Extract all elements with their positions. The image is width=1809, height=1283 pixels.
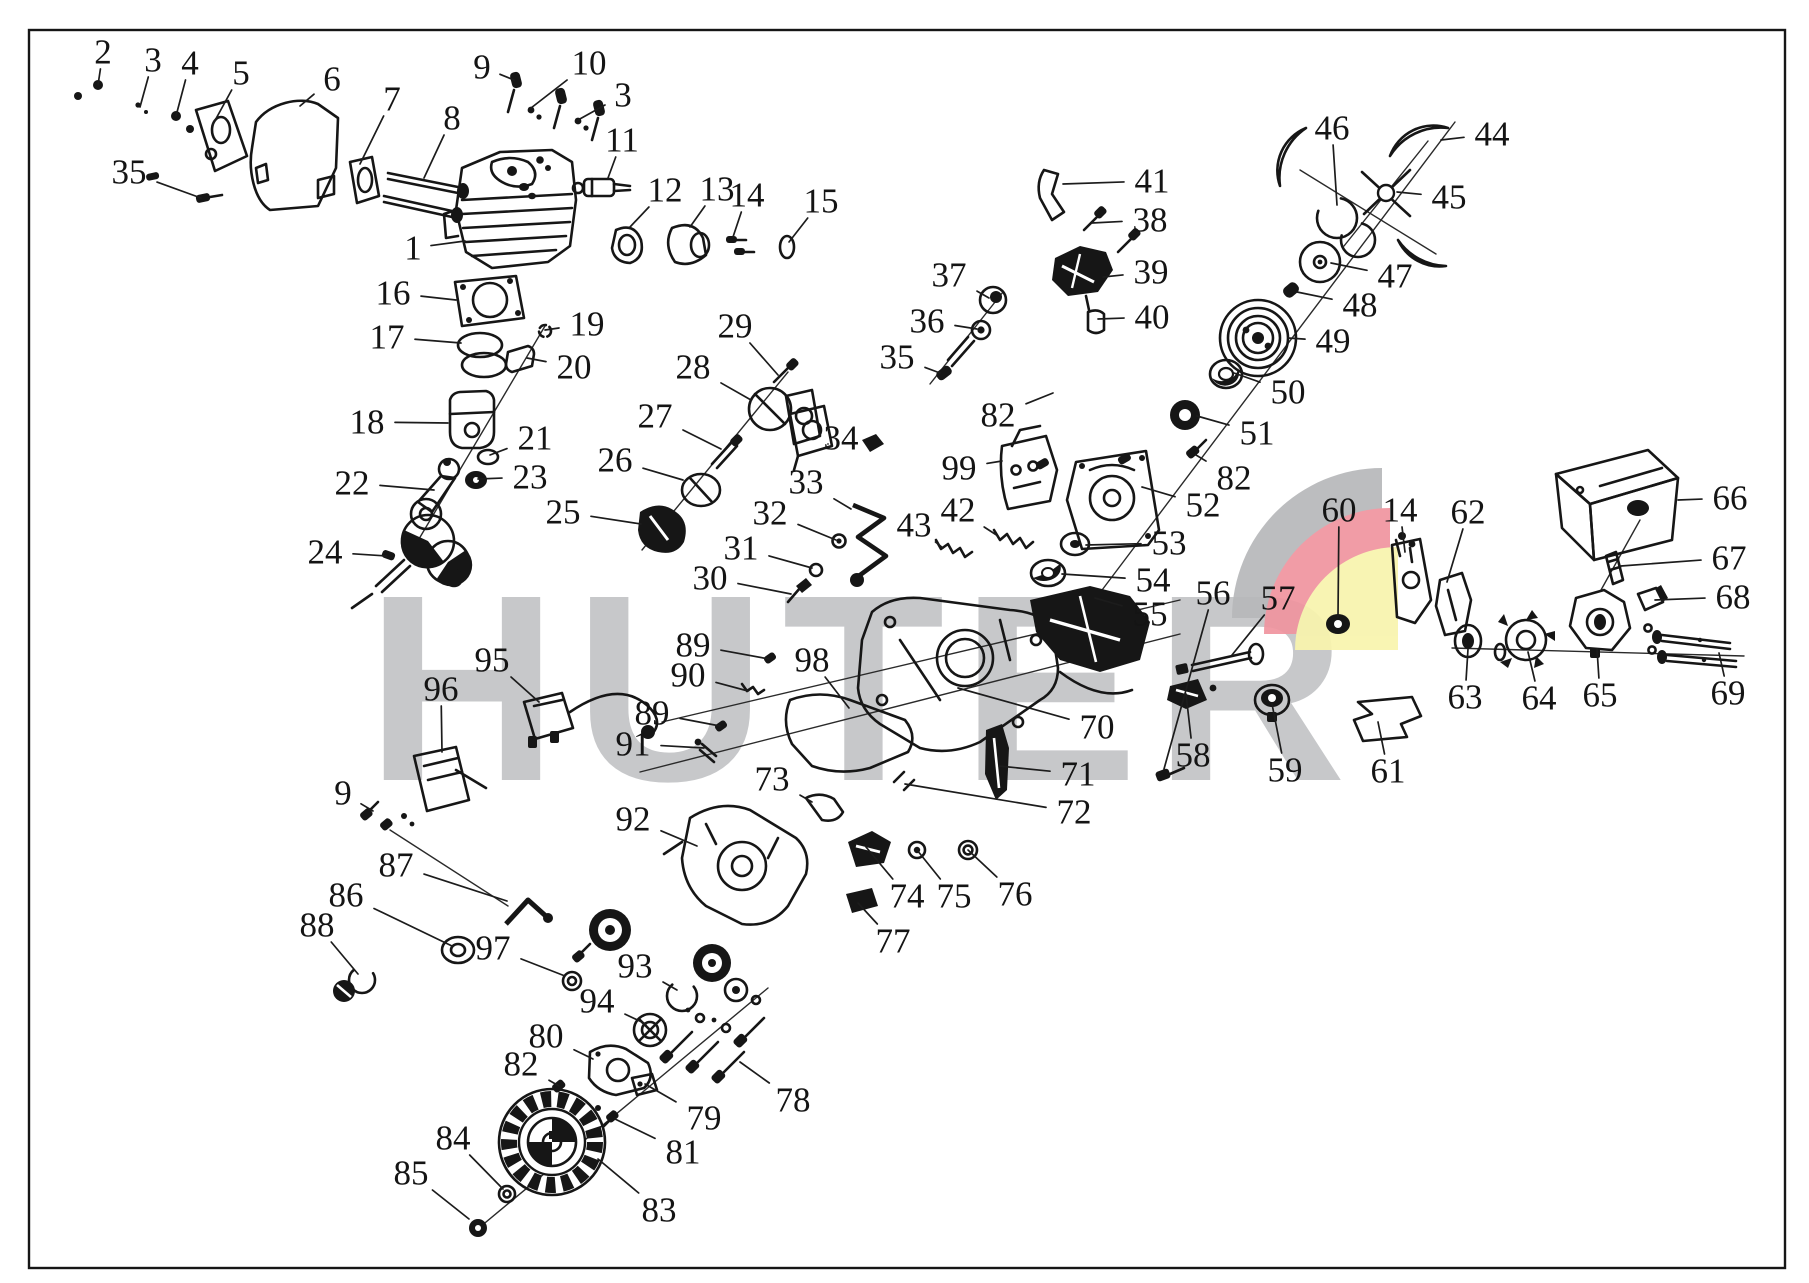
part-label-71: 71 xyxy=(1061,755,1096,794)
muffler-plate xyxy=(196,101,247,171)
leader-line-8 xyxy=(424,135,444,178)
leader-line-15 xyxy=(789,218,808,242)
part-label-61: 61 xyxy=(1371,752,1406,791)
leader-line-44 xyxy=(1441,137,1464,140)
leader-line-3 xyxy=(140,77,148,107)
leader-line-29 xyxy=(750,343,778,375)
part-label-94: 94 xyxy=(580,982,615,1021)
part-label-24: 24 xyxy=(308,533,343,572)
leader-line-76 xyxy=(968,850,997,877)
leader-line-47 xyxy=(1331,263,1367,270)
flywheel xyxy=(469,1089,605,1237)
part-label-60: 60 xyxy=(1322,491,1357,530)
part-label-3: 3 xyxy=(144,41,162,80)
leader-line-83 xyxy=(598,1159,639,1193)
leader-line-97 xyxy=(521,959,565,976)
part-label-66: 66 xyxy=(1713,479,1748,518)
part-label-8: 8 xyxy=(443,99,461,138)
part-label-75: 75 xyxy=(937,877,972,916)
small-fasteners-topleft xyxy=(74,80,222,203)
leader-line-75 xyxy=(917,850,940,879)
part-label-22: 22 xyxy=(335,464,370,503)
pawl-washers xyxy=(333,900,553,1002)
part-label-87: 87 xyxy=(379,846,414,885)
part-label-4: 4 xyxy=(181,44,199,83)
starter-parts xyxy=(563,909,747,1046)
part-label-82: 82 xyxy=(981,396,1016,435)
leader-line-81 xyxy=(615,1119,655,1138)
exhaust-gasket xyxy=(350,157,379,203)
part-label-37: 37 xyxy=(932,256,967,295)
leader-line-38 xyxy=(1092,221,1122,223)
part-label-84: 84 xyxy=(436,1119,471,1158)
leader-line-23 xyxy=(478,478,502,479)
part-label-14: 14 xyxy=(1383,491,1418,530)
bar-plate xyxy=(1001,426,1057,509)
part-label-55: 55 xyxy=(1133,595,1168,634)
leader-line-49 xyxy=(1288,338,1305,339)
part-label-46: 46 xyxy=(1315,109,1350,148)
part-label-43: 43 xyxy=(897,506,932,545)
clutch-bearing-washer xyxy=(1170,360,1242,460)
part-label-83: 83 xyxy=(642,1191,677,1230)
part-label-77: 77 xyxy=(876,922,911,961)
part-label-10: 10 xyxy=(572,44,607,83)
leader-line-33 xyxy=(834,499,851,509)
oil-pump-group xyxy=(1455,552,1736,668)
leader-line-88 xyxy=(331,942,358,974)
part-label-49: 49 xyxy=(1316,322,1351,361)
part-label-65: 65 xyxy=(1583,676,1618,715)
leader-line-35 xyxy=(157,182,201,198)
part-label-91: 91 xyxy=(616,725,651,764)
part-label-35: 35 xyxy=(880,338,915,377)
leader-line-86 xyxy=(374,908,452,946)
part-label-50: 50 xyxy=(1271,373,1306,412)
part-label-21: 21 xyxy=(518,419,553,458)
part-label-42: 42 xyxy=(941,491,976,530)
part-label-9: 9 xyxy=(473,48,491,87)
part-label-81: 81 xyxy=(666,1133,701,1172)
part-label-88: 88 xyxy=(300,906,335,945)
part-label-92: 92 xyxy=(616,800,651,839)
leader-line-18 xyxy=(395,422,448,423)
part-label-59: 59 xyxy=(1268,751,1303,790)
part-label-93: 93 xyxy=(618,947,653,986)
leader-line-64 xyxy=(1528,652,1535,681)
part-label-96: 96 xyxy=(424,670,459,709)
leader-line-25 xyxy=(591,516,641,524)
part-label-44: 44 xyxy=(1475,115,1510,154)
leader-line-60 xyxy=(1338,527,1339,617)
piston-rings xyxy=(458,333,506,377)
part-label-73: 73 xyxy=(755,760,790,799)
part-label-6: 6 xyxy=(323,60,341,99)
leader-line-12 xyxy=(630,207,649,227)
part-label-17: 17 xyxy=(370,318,405,357)
part-label-58: 58 xyxy=(1176,736,1211,775)
part-label-51: 51 xyxy=(1240,414,1275,453)
part-label-35: 35 xyxy=(112,153,147,192)
leader-line-63 xyxy=(1466,649,1468,680)
part-label-36: 36 xyxy=(910,302,945,341)
part-label-63: 63 xyxy=(1448,678,1483,717)
part-label-72: 72 xyxy=(1057,793,1092,832)
leader-line-41 xyxy=(1063,182,1124,184)
leader-line-17 xyxy=(415,339,461,343)
part-label-97: 97 xyxy=(476,929,511,968)
part-label-76: 76 xyxy=(998,875,1033,914)
part-label-78: 78 xyxy=(776,1081,811,1120)
part-label-52: 52 xyxy=(1186,486,1221,525)
part-label-38: 38 xyxy=(1133,201,1168,240)
part-label-14: 14 xyxy=(730,176,765,215)
leader-line-19 xyxy=(545,328,559,330)
part-label-11: 11 xyxy=(605,121,639,160)
leader-line-67 xyxy=(1621,560,1701,566)
part-label-28: 28 xyxy=(676,348,711,387)
part-label-64: 64 xyxy=(1522,679,1557,718)
leader-line-66 xyxy=(1678,499,1702,500)
throttle-assembly xyxy=(1039,170,1142,333)
diagram-page: HUTER xyxy=(0,0,1809,1283)
part-label-32: 32 xyxy=(753,494,788,533)
part-label-25: 25 xyxy=(546,493,581,532)
part-label-41: 41 xyxy=(1135,162,1170,201)
leader-line-11 xyxy=(608,157,616,178)
part-label-45: 45 xyxy=(1432,178,1467,217)
part-label-90: 90 xyxy=(671,656,706,695)
leader-line-82 xyxy=(1026,393,1053,404)
part-label-26: 26 xyxy=(598,441,633,480)
part-label-95: 95 xyxy=(475,641,510,680)
part-label-69: 69 xyxy=(1711,674,1746,713)
part-label-82: 82 xyxy=(504,1045,539,1084)
part-label-23: 23 xyxy=(513,458,548,497)
part-label-53: 53 xyxy=(1152,524,1187,563)
part-label-7: 7 xyxy=(383,80,401,119)
part-label-33: 33 xyxy=(789,463,824,502)
part-label-12: 12 xyxy=(648,171,683,210)
part-label-56: 56 xyxy=(1196,574,1231,613)
part-label-20: 20 xyxy=(557,348,592,387)
leader-line-46 xyxy=(1333,145,1337,205)
part-label-67: 67 xyxy=(1712,539,1747,578)
part-label-19: 19 xyxy=(570,305,605,344)
part-label-31: 31 xyxy=(724,529,759,568)
leader-line-85 xyxy=(432,1190,469,1219)
part-label-16: 16 xyxy=(376,274,411,313)
part-label-68: 68 xyxy=(1716,578,1751,617)
part-label-3: 3 xyxy=(614,76,632,115)
leader-line-84 xyxy=(470,1155,503,1189)
leader-line-1 xyxy=(431,241,465,246)
leader-line-28 xyxy=(721,383,751,400)
part-label-40: 40 xyxy=(1135,298,1170,337)
leader-line-52 xyxy=(1142,487,1175,497)
leader-line-32 xyxy=(798,524,836,540)
leader-line-16 xyxy=(421,296,456,300)
leader-line-51 xyxy=(1197,416,1229,425)
part-label-29: 29 xyxy=(718,307,753,346)
part-label-85: 85 xyxy=(394,1154,429,1193)
leader-line-13 xyxy=(690,206,705,227)
leader-line-40 xyxy=(1098,318,1124,319)
part-label-34: 34 xyxy=(824,419,859,458)
leader-line-35 xyxy=(925,367,940,373)
part-label-99: 99 xyxy=(942,449,977,488)
leader-line-4 xyxy=(176,80,186,116)
leader-line-96 xyxy=(441,706,442,752)
muffler-body xyxy=(251,101,338,210)
part-label-39: 39 xyxy=(1134,253,1169,292)
part-label-15: 15 xyxy=(804,182,839,221)
base-gasket xyxy=(455,276,524,326)
part-label-27: 27 xyxy=(638,397,673,436)
part-label-57: 57 xyxy=(1261,579,1296,618)
chain-tensioner xyxy=(935,287,1006,382)
leader-line-26 xyxy=(643,468,683,480)
part-label-30: 30 xyxy=(693,559,728,598)
cylinder xyxy=(444,150,576,268)
leader-line-78 xyxy=(740,1062,769,1083)
part-label-47: 47 xyxy=(1378,257,1413,296)
part-label-48: 48 xyxy=(1343,286,1378,325)
part-label-18: 18 xyxy=(350,403,385,442)
intake-boot-parts xyxy=(638,357,820,553)
part-label-82: 82 xyxy=(1217,459,1252,498)
leader-line-20 xyxy=(527,358,546,362)
part-label-98: 98 xyxy=(795,641,830,680)
part-label-70: 70 xyxy=(1080,708,1115,747)
part-label-74: 74 xyxy=(890,877,925,916)
intake-manifold-parts xyxy=(612,225,794,264)
leader-line-14 xyxy=(733,212,741,237)
part-label-5: 5 xyxy=(232,54,250,93)
part-label-62: 62 xyxy=(1451,493,1486,532)
leader-line-82 xyxy=(1196,455,1206,461)
spark-plug xyxy=(573,179,630,196)
part-label-2: 2 xyxy=(94,33,112,72)
leader-line-22 xyxy=(380,485,434,490)
leader-line-27 xyxy=(683,430,721,449)
oil-tank xyxy=(1556,450,1678,560)
part-label-9: 9 xyxy=(334,774,352,813)
part-label-1: 1 xyxy=(404,229,422,268)
